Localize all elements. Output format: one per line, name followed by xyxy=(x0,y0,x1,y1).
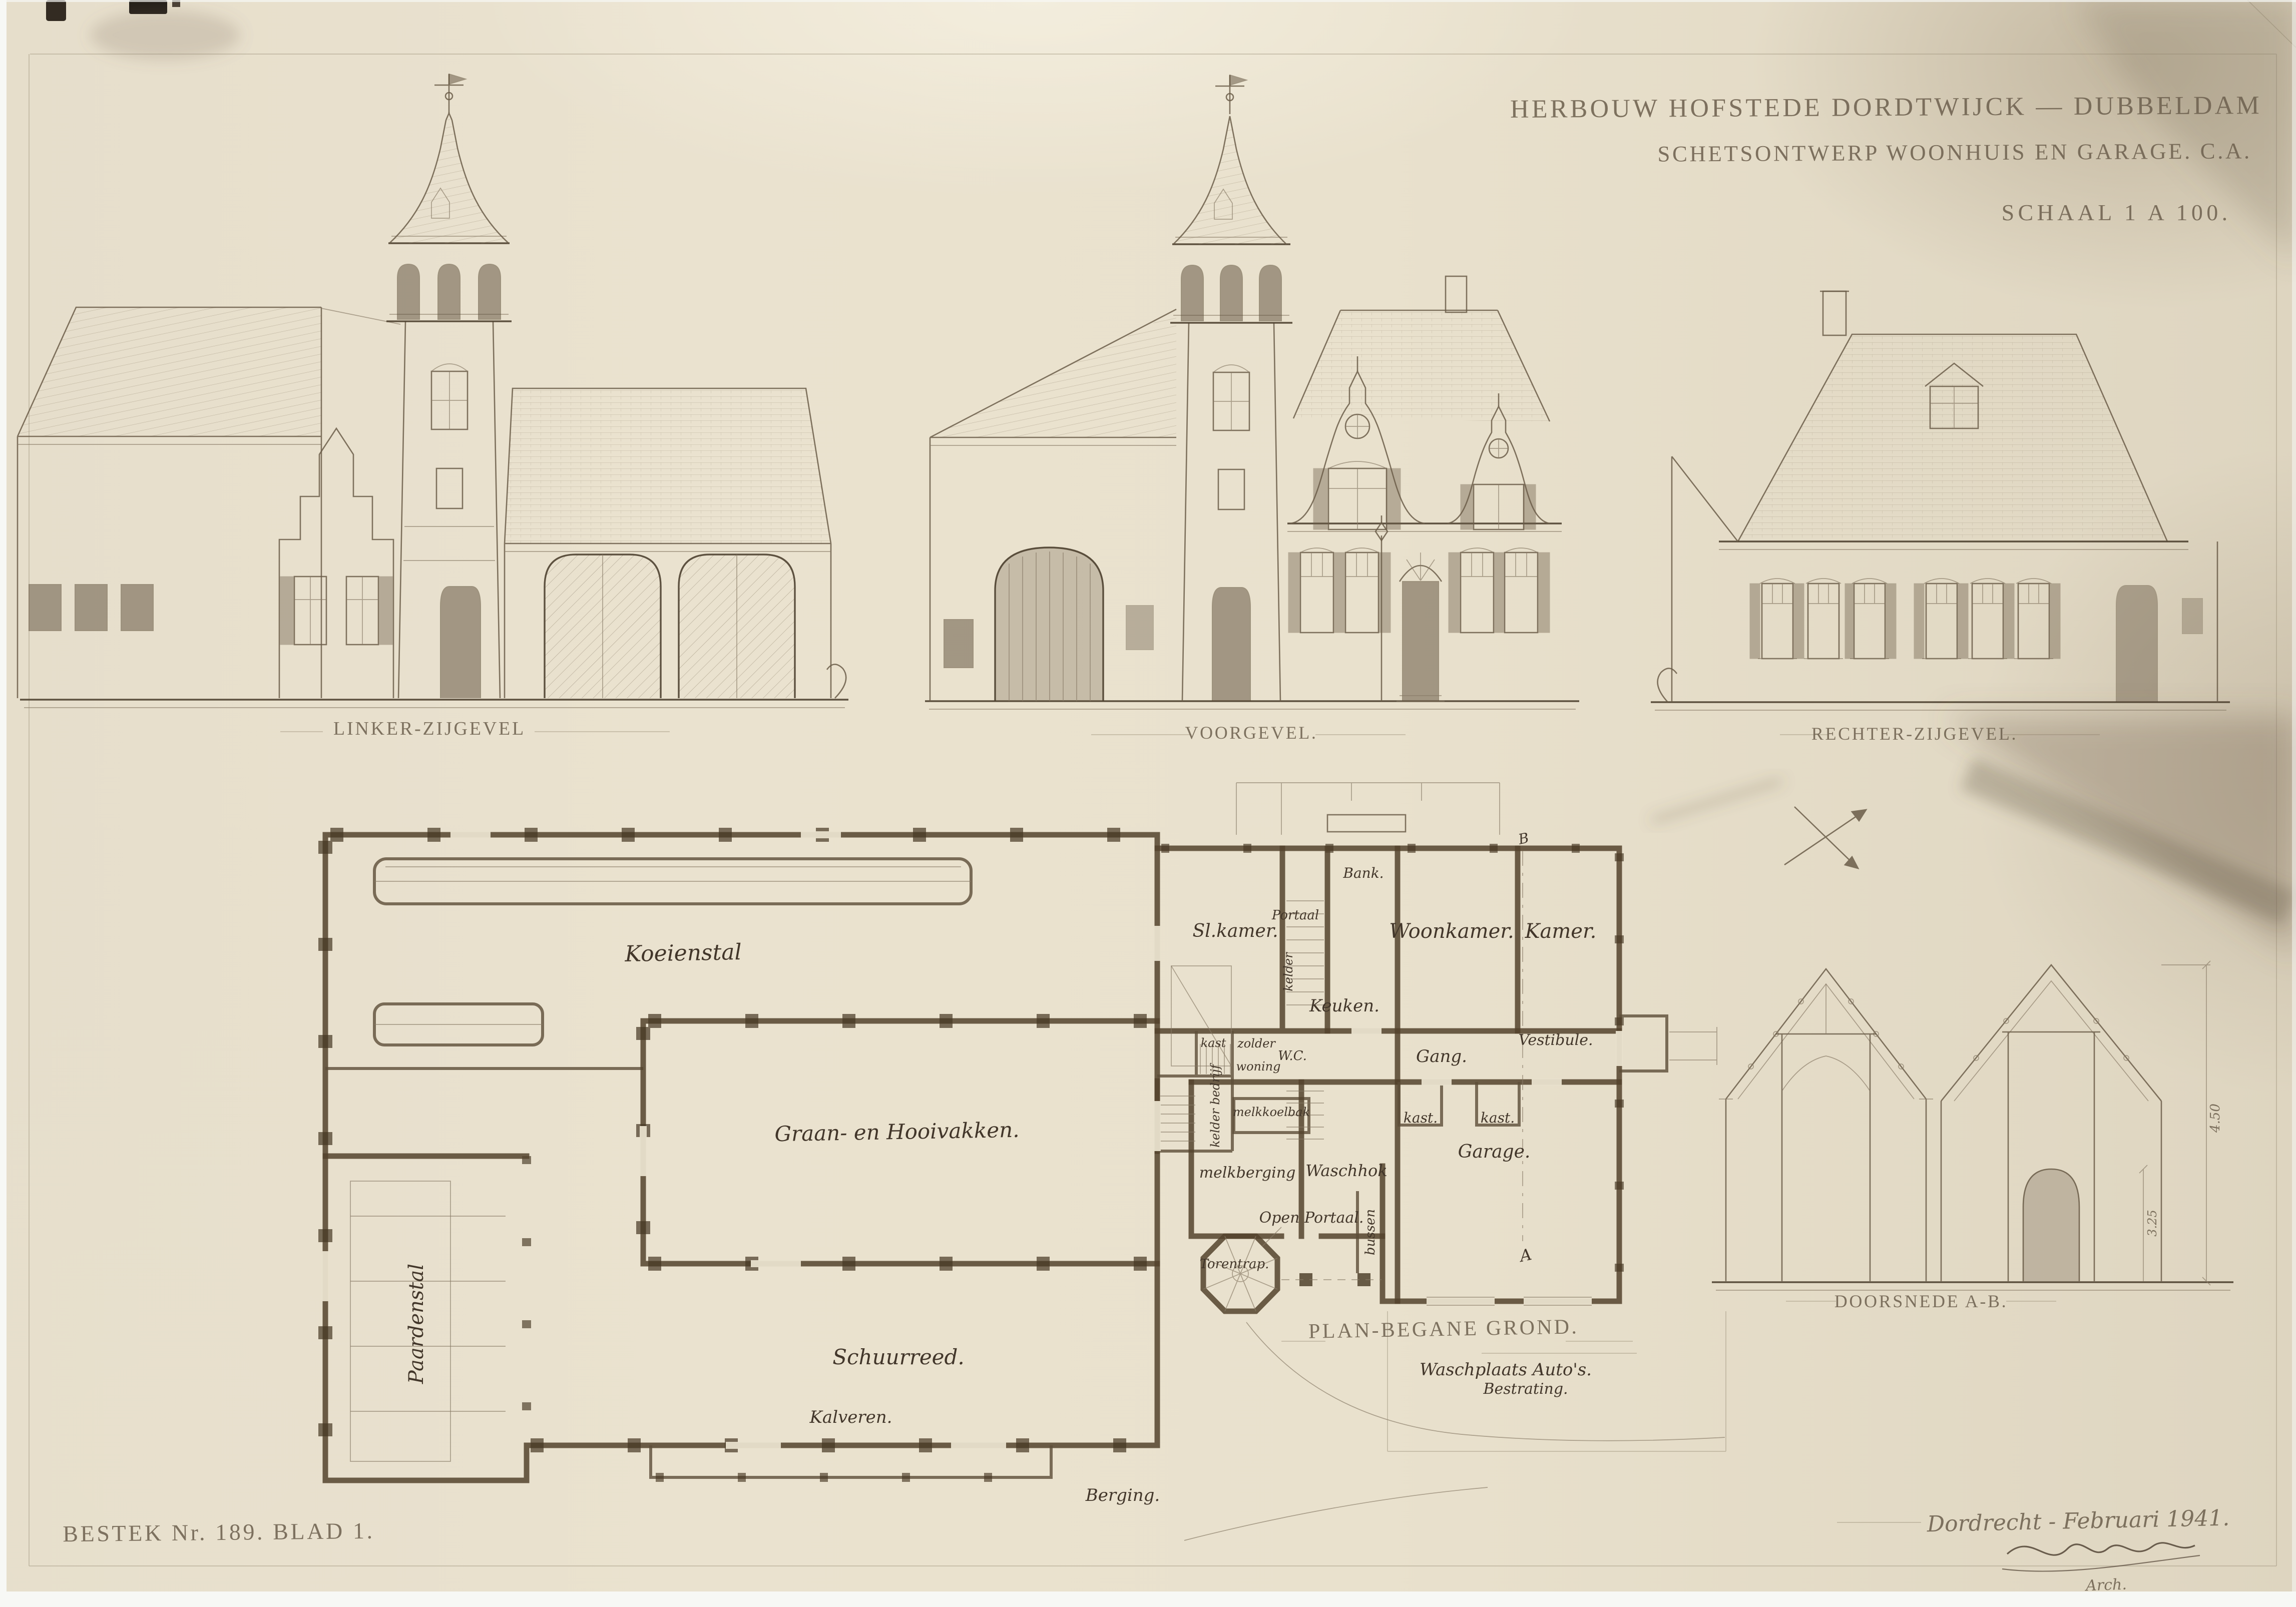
room-berging: Berging. xyxy=(1086,1487,1160,1504)
room-melkkoelbak: melkkoelbak xyxy=(1233,1106,1310,1118)
date-place: Dordrecht - Februari 1941. xyxy=(1927,1507,2229,1536)
plan-title: PLAN-BEGANE GROND. xyxy=(1308,1316,1579,1342)
room-torentrap: Torentrap. xyxy=(1200,1258,1269,1271)
drawing-sheet: HERBOUW HOFSTEDE DORDTWIJCK — DUBBELDAM … xyxy=(0,0,2296,1607)
room-bank: Bank. xyxy=(1343,866,1384,880)
room-kamer: Kamer. xyxy=(1525,921,1597,941)
room-keuken: Keuken. xyxy=(1309,997,1380,1014)
label-front-elevation: VOORGEVEL. xyxy=(1185,724,1318,742)
room-schuurreed: Schuurreed. xyxy=(832,1347,965,1368)
drawing-sheet-art xyxy=(0,0,2296,1607)
photo-edge-left xyxy=(0,0,7,1607)
photo-edge-right xyxy=(2292,0,2296,1607)
room-kast-3: kast xyxy=(1201,1037,1226,1049)
title-line-2: SCHETSONTWERP WOONHUIS EN GARAGE. C.A. xyxy=(1657,140,2251,165)
section-dim-door: 3.25 xyxy=(2146,1210,2158,1236)
room-kalveren: Kalveren. xyxy=(810,1409,892,1426)
room-sl-kamer: Sl.kamer. xyxy=(1192,922,1278,940)
photo-edge-bottom xyxy=(0,1591,2296,1607)
front-elevation-drawing xyxy=(925,75,1579,735)
right-elevation-drawing xyxy=(1651,291,2230,735)
room-waschhok: Waschhok xyxy=(1305,1163,1387,1179)
left-elevation-drawing xyxy=(18,74,848,732)
label-right-elevation: RECHTER-ZIJGEVEL. xyxy=(1811,725,2018,743)
tape-marks xyxy=(46,0,2296,48)
section-dim-total: 4.50 xyxy=(2209,1104,2222,1133)
room-garage: Garage. xyxy=(1458,1143,1531,1161)
room-gang: Gang. xyxy=(1416,1048,1467,1065)
room-open-portaal: Open Portaal. xyxy=(1259,1211,1364,1226)
room-wc: W.C. xyxy=(1278,1049,1307,1062)
floor-plan-drawing xyxy=(325,783,1866,1540)
room-graan-hooivakken: Graan- en Hooivakken. xyxy=(774,1120,1020,1145)
title-line-3: SCHAAL 1 A 100. xyxy=(2002,201,2231,224)
room-kast-2: kast. xyxy=(1481,1111,1515,1125)
label-left-elevation: LINKER-ZIJGEVEL xyxy=(333,719,526,738)
section-title: DOORSNEDE A-B. xyxy=(1834,1292,2008,1310)
room-vestibule: Vestibule. xyxy=(1518,1033,1593,1048)
north-arrow-icon xyxy=(1784,807,1866,868)
border-frame xyxy=(29,54,2276,1566)
room-woning: woning xyxy=(1236,1060,1281,1073)
room-zolder: zolder xyxy=(1237,1037,1275,1049)
room-melkberging: melkberging xyxy=(1199,1166,1296,1181)
bestek-number: BESTEK Nr. 189. BLAD 1. xyxy=(63,1519,375,1546)
room-woonkamer: Woonkamer. xyxy=(1389,921,1514,941)
photo-edge-top xyxy=(0,0,2296,2)
room-bussen: bussen xyxy=(1364,1209,1377,1255)
title-line-1: HERBOUW HOFSTEDE DORDTWIJCK — DUBBELDAM xyxy=(1510,93,2262,123)
label-waschplaats-autos: Waschplaats Auto's. xyxy=(1420,1361,1592,1378)
room-kelder: kelder xyxy=(1282,952,1294,991)
room-kelder-bedrijf: kelder bedrijf xyxy=(1209,1064,1221,1148)
label-bestrating: Bestrating. xyxy=(1483,1382,1568,1397)
photo-of-drawing: HERBOUW HOFSTEDE DORDTWIJCK — DUBBELDAM … xyxy=(0,0,2296,1607)
room-kast-1: kast. xyxy=(1404,1111,1438,1125)
room-koeienstal: Koeienstal xyxy=(625,941,742,965)
room-portaal: Portaal xyxy=(1272,909,1319,922)
cross-section-drawing xyxy=(1712,961,2233,1301)
room-paardenstal: Paardenstal xyxy=(406,1264,426,1384)
